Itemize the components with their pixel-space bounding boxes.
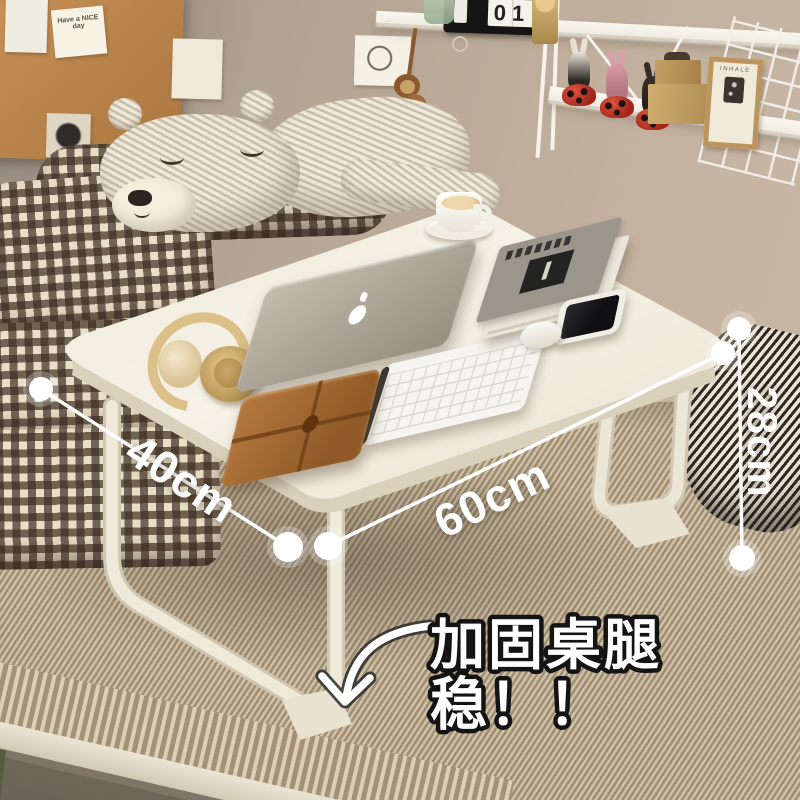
coffee-cup xyxy=(436,192,482,232)
ear-cushion xyxy=(158,340,202,388)
cup-handle xyxy=(473,204,492,230)
book-cover-photo xyxy=(519,249,575,294)
dim-label-28cm: 28cm xyxy=(738,380,786,504)
apple-logo-icon xyxy=(340,298,374,333)
product-photo: Have a NICE day 01 xyxy=(0,0,800,800)
phone-screen xyxy=(560,294,620,339)
